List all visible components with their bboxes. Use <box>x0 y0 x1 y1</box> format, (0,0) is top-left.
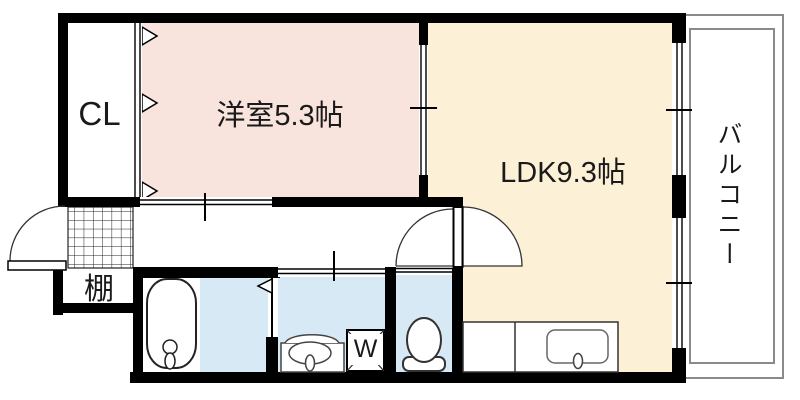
wall-wash-toilet <box>385 267 396 383</box>
washing-machine-icon <box>347 330 384 371</box>
wall-right-mid <box>672 175 686 218</box>
kitchen-counter-icon <box>463 322 618 372</box>
balcony-outline <box>681 15 783 378</box>
wall-right-top <box>672 13 686 43</box>
wall-bath-left <box>133 267 143 383</box>
washbasin-icon <box>281 335 344 372</box>
wall-bath-wash-divider <box>266 337 278 372</box>
wall-bath-top <box>133 267 280 278</box>
wall-under-closet <box>58 197 140 207</box>
floor-plan: CL 洋室5.3帖 LDK9.3帖 棚 バルコニー W <box>0 0 800 400</box>
balcony-inner-rail <box>690 29 774 363</box>
door-swing-icon <box>8 206 66 270</box>
wall-top <box>58 13 686 23</box>
wall-partition-top <box>419 13 428 45</box>
wall-shelf-bottom <box>53 303 140 313</box>
wall-bedroom-south <box>272 197 463 207</box>
ldk-floor <box>428 23 672 372</box>
wall-bottom <box>130 372 686 383</box>
entrance-grid-icon <box>68 207 133 268</box>
wall-partition-bottom <box>419 175 428 207</box>
western-room-floor <box>141 23 420 197</box>
floor-plan-drawing <box>0 0 800 400</box>
wall-toilet-ldk <box>452 268 463 372</box>
kitchen-sink-icon <box>574 354 583 369</box>
bathtub-icon <box>147 279 196 369</box>
bathroom-floor <box>200 278 268 372</box>
wall-left-upper <box>58 13 68 205</box>
